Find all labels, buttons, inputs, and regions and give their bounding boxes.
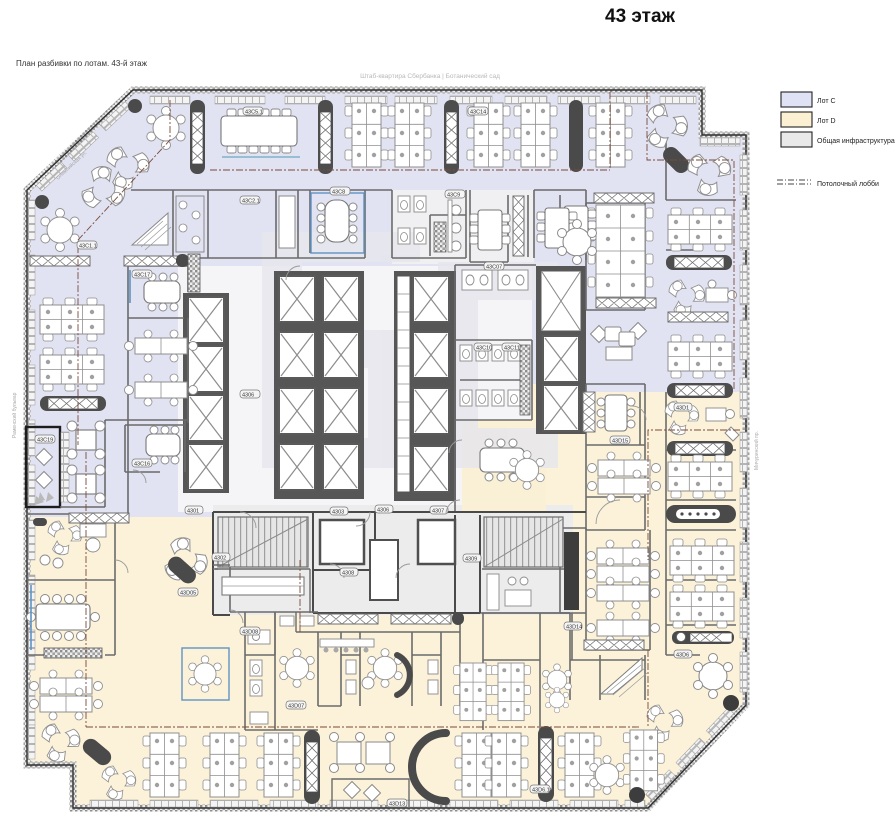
svg-text:43C14: 43C14 [470, 110, 486, 116]
svg-text:43 этаж: 43 этаж [605, 6, 676, 27]
svg-text:43D15: 43D15 [612, 439, 628, 445]
svg-text:43C10: 43C10 [476, 346, 492, 352]
svg-text:Лот C: Лот C [817, 98, 836, 105]
svg-text:4303: 4303 [332, 510, 344, 516]
svg-text:43D13: 43D13 [389, 802, 405, 808]
svg-text:43D6: 43D6 [676, 653, 689, 659]
svg-text:4306: 4306 [242, 393, 254, 399]
svg-text:План разбивки по лотам. 43-й э: План разбивки по лотам. 43-й этаж [16, 59, 148, 68]
svg-text:4302: 4302 [214, 556, 226, 562]
svg-text:4306: 4306 [377, 508, 389, 514]
svg-text:Лот D: Лот D [817, 118, 836, 125]
svg-text:43C1.1: 43C1.1 [79, 244, 97, 250]
svg-text:Штаб-квартира Сбербанка | Бота: Штаб-квартира Сбербанка | Ботанический с… [360, 72, 500, 80]
svg-text:43C17: 43C17 [134, 273, 150, 279]
svg-text:43C07: 43C07 [486, 265, 502, 271]
svg-text:43D1: 43D1 [676, 406, 689, 412]
svg-text:Потолочный лобби: Потолочный лобби [817, 180, 879, 188]
svg-text:43D6.1: 43D6.1 [532, 788, 550, 794]
svg-text:43C11: 43C11 [504, 346, 520, 352]
svg-text:43C2.1: 43C2.1 [242, 199, 260, 205]
svg-text:Мичуринский пр.: Мичуринский пр. [753, 431, 760, 470]
svg-text:43C5.1: 43C5.1 [245, 110, 263, 116]
svg-text:43C9: 43C9 [447, 193, 460, 199]
svg-text:43D14: 43D14 [566, 625, 582, 631]
svg-text:43D07: 43D07 [288, 704, 304, 710]
svg-text:4309: 4309 [465, 557, 477, 563]
svg-text:Раменский бульвар: Раменский бульвар [11, 392, 18, 438]
svg-text:43C8: 43C8 [332, 190, 345, 196]
svg-text:4307: 4307 [432, 509, 444, 515]
svg-text:43C19: 43C19 [37, 438, 53, 444]
svg-text:Общая инфраструктура: Общая инфраструктура [817, 137, 895, 145]
svg-text:43C16: 43C16 [134, 462, 150, 468]
svg-text:43D05: 43D05 [180, 591, 196, 597]
svg-text:4301: 4301 [187, 509, 199, 515]
svg-text:43D08: 43D08 [242, 630, 258, 636]
svg-text:4308: 4308 [342, 571, 354, 577]
